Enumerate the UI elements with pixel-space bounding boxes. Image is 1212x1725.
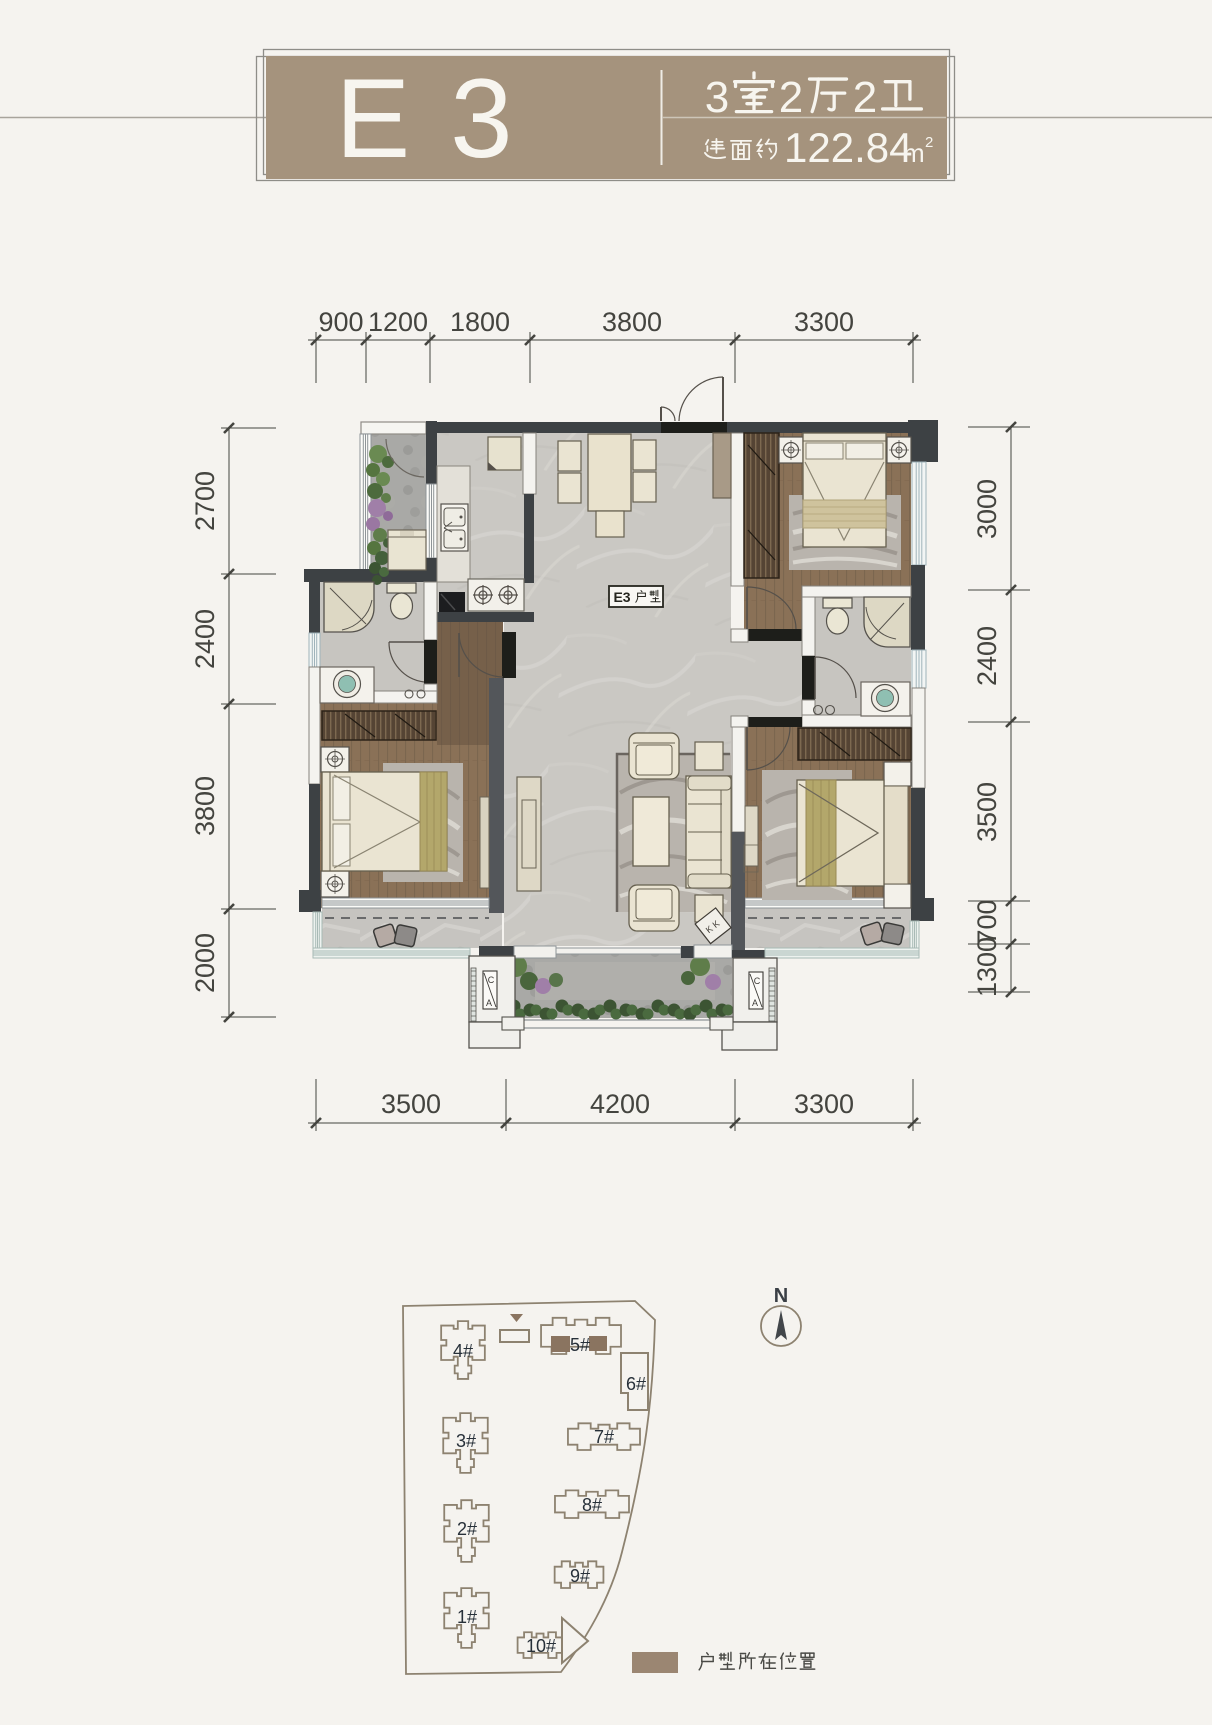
svg-text:4200: 4200 [590,1089,650,1119]
svg-text:E3: E3 [613,589,630,605]
svg-text:8#: 8# [582,1495,602,1515]
svg-text:3#: 3# [456,1431,476,1451]
svg-text:2700: 2700 [190,471,220,531]
svg-text:2000: 2000 [190,933,220,993]
svg-text:6#: 6# [626,1374,646,1394]
svg-text:3300: 3300 [794,1089,854,1119]
svg-text:2: 2 [779,73,803,122]
svg-text:9#: 9# [570,1566,590,1586]
svg-text:E3: E3 [336,56,553,181]
svg-text:1#: 1# [457,1607,477,1627]
svg-text:122.84: 122.84 [784,124,912,171]
svg-text:2400: 2400 [190,609,220,669]
svg-text:900: 900 [318,307,363,337]
svg-text:2: 2 [853,73,877,122]
svg-text:2: 2 [925,134,933,151]
svg-text:1200: 1200 [368,307,428,337]
svg-text:C: C [754,976,761,986]
svg-text:1800: 1800 [450,307,510,337]
svg-text:3500: 3500 [972,782,1002,842]
svg-text:2400: 2400 [972,626,1002,686]
svg-text:C: C [488,975,495,985]
svg-text:4#: 4# [453,1341,473,1361]
svg-text:m: m [903,138,925,168]
svg-text:10#: 10# [526,1636,556,1656]
svg-text:3500: 3500 [381,1089,441,1119]
svg-text:A: A [752,998,758,1008]
svg-text:3800: 3800 [602,307,662,337]
svg-text:1300: 1300 [972,937,1002,997]
svg-text:N: N [774,1285,788,1307]
svg-text:2#: 2# [457,1519,477,1539]
svg-text:5#: 5# [570,1335,590,1355]
svg-text:3800: 3800 [190,776,220,836]
svg-text:7#: 7# [594,1427,614,1447]
svg-text:3: 3 [705,73,729,122]
svg-text:3000: 3000 [972,479,1002,539]
svg-text:3300: 3300 [794,307,854,337]
svg-text:A: A [486,998,492,1008]
